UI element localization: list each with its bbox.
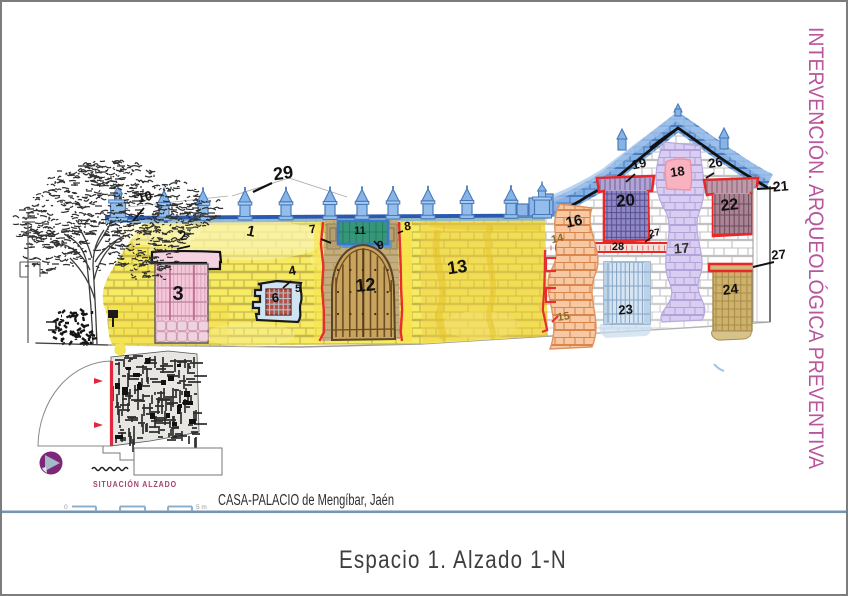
svg-text:20: 20 bbox=[615, 190, 636, 211]
svg-text:3: 3 bbox=[172, 283, 183, 305]
svg-text:17: 17 bbox=[673, 239, 690, 256]
svg-text:CASA-PALACIO de Mengíbar, Jaén: CASA-PALACIO de Mengíbar, Jaén bbox=[218, 492, 394, 509]
svg-text:5: 5 bbox=[295, 283, 301, 295]
svg-text:0: 0 bbox=[64, 504, 68, 511]
svg-text:24: 24 bbox=[722, 280, 739, 298]
svg-text:Espacio 1. Alzado 1-N: Espacio 1. Alzado 1-N bbox=[339, 546, 567, 574]
svg-text:INTERVENCIÓN. ARQUEOLÓGICA PRE: INTERVENCIÓN. ARQUEOLÓGICA PREVENTIVA bbox=[804, 27, 829, 470]
svg-text:18: 18 bbox=[669, 163, 685, 180]
svg-text:13: 13 bbox=[446, 256, 469, 279]
svg-text:SITUACIÓN ALZADO: SITUACIÓN ALZADO bbox=[93, 480, 177, 489]
svg-text:15: 15 bbox=[557, 310, 571, 324]
svg-text:12: 12 bbox=[355, 274, 377, 296]
svg-text:29: 29 bbox=[272, 162, 295, 185]
svg-text:16: 16 bbox=[564, 212, 584, 232]
svg-text:27: 27 bbox=[771, 246, 787, 262]
svg-text:19: 19 bbox=[630, 155, 647, 173]
svg-text:22: 22 bbox=[720, 196, 740, 215]
svg-text:5 m: 5 m bbox=[196, 504, 207, 511]
svg-text:23: 23 bbox=[618, 301, 634, 317]
svg-text:10: 10 bbox=[136, 188, 154, 206]
svg-text:28: 28 bbox=[612, 241, 624, 253]
svg-text:26: 26 bbox=[707, 154, 723, 171]
svg-text:11: 11 bbox=[354, 225, 366, 237]
svg-text:21: 21 bbox=[772, 177, 789, 194]
